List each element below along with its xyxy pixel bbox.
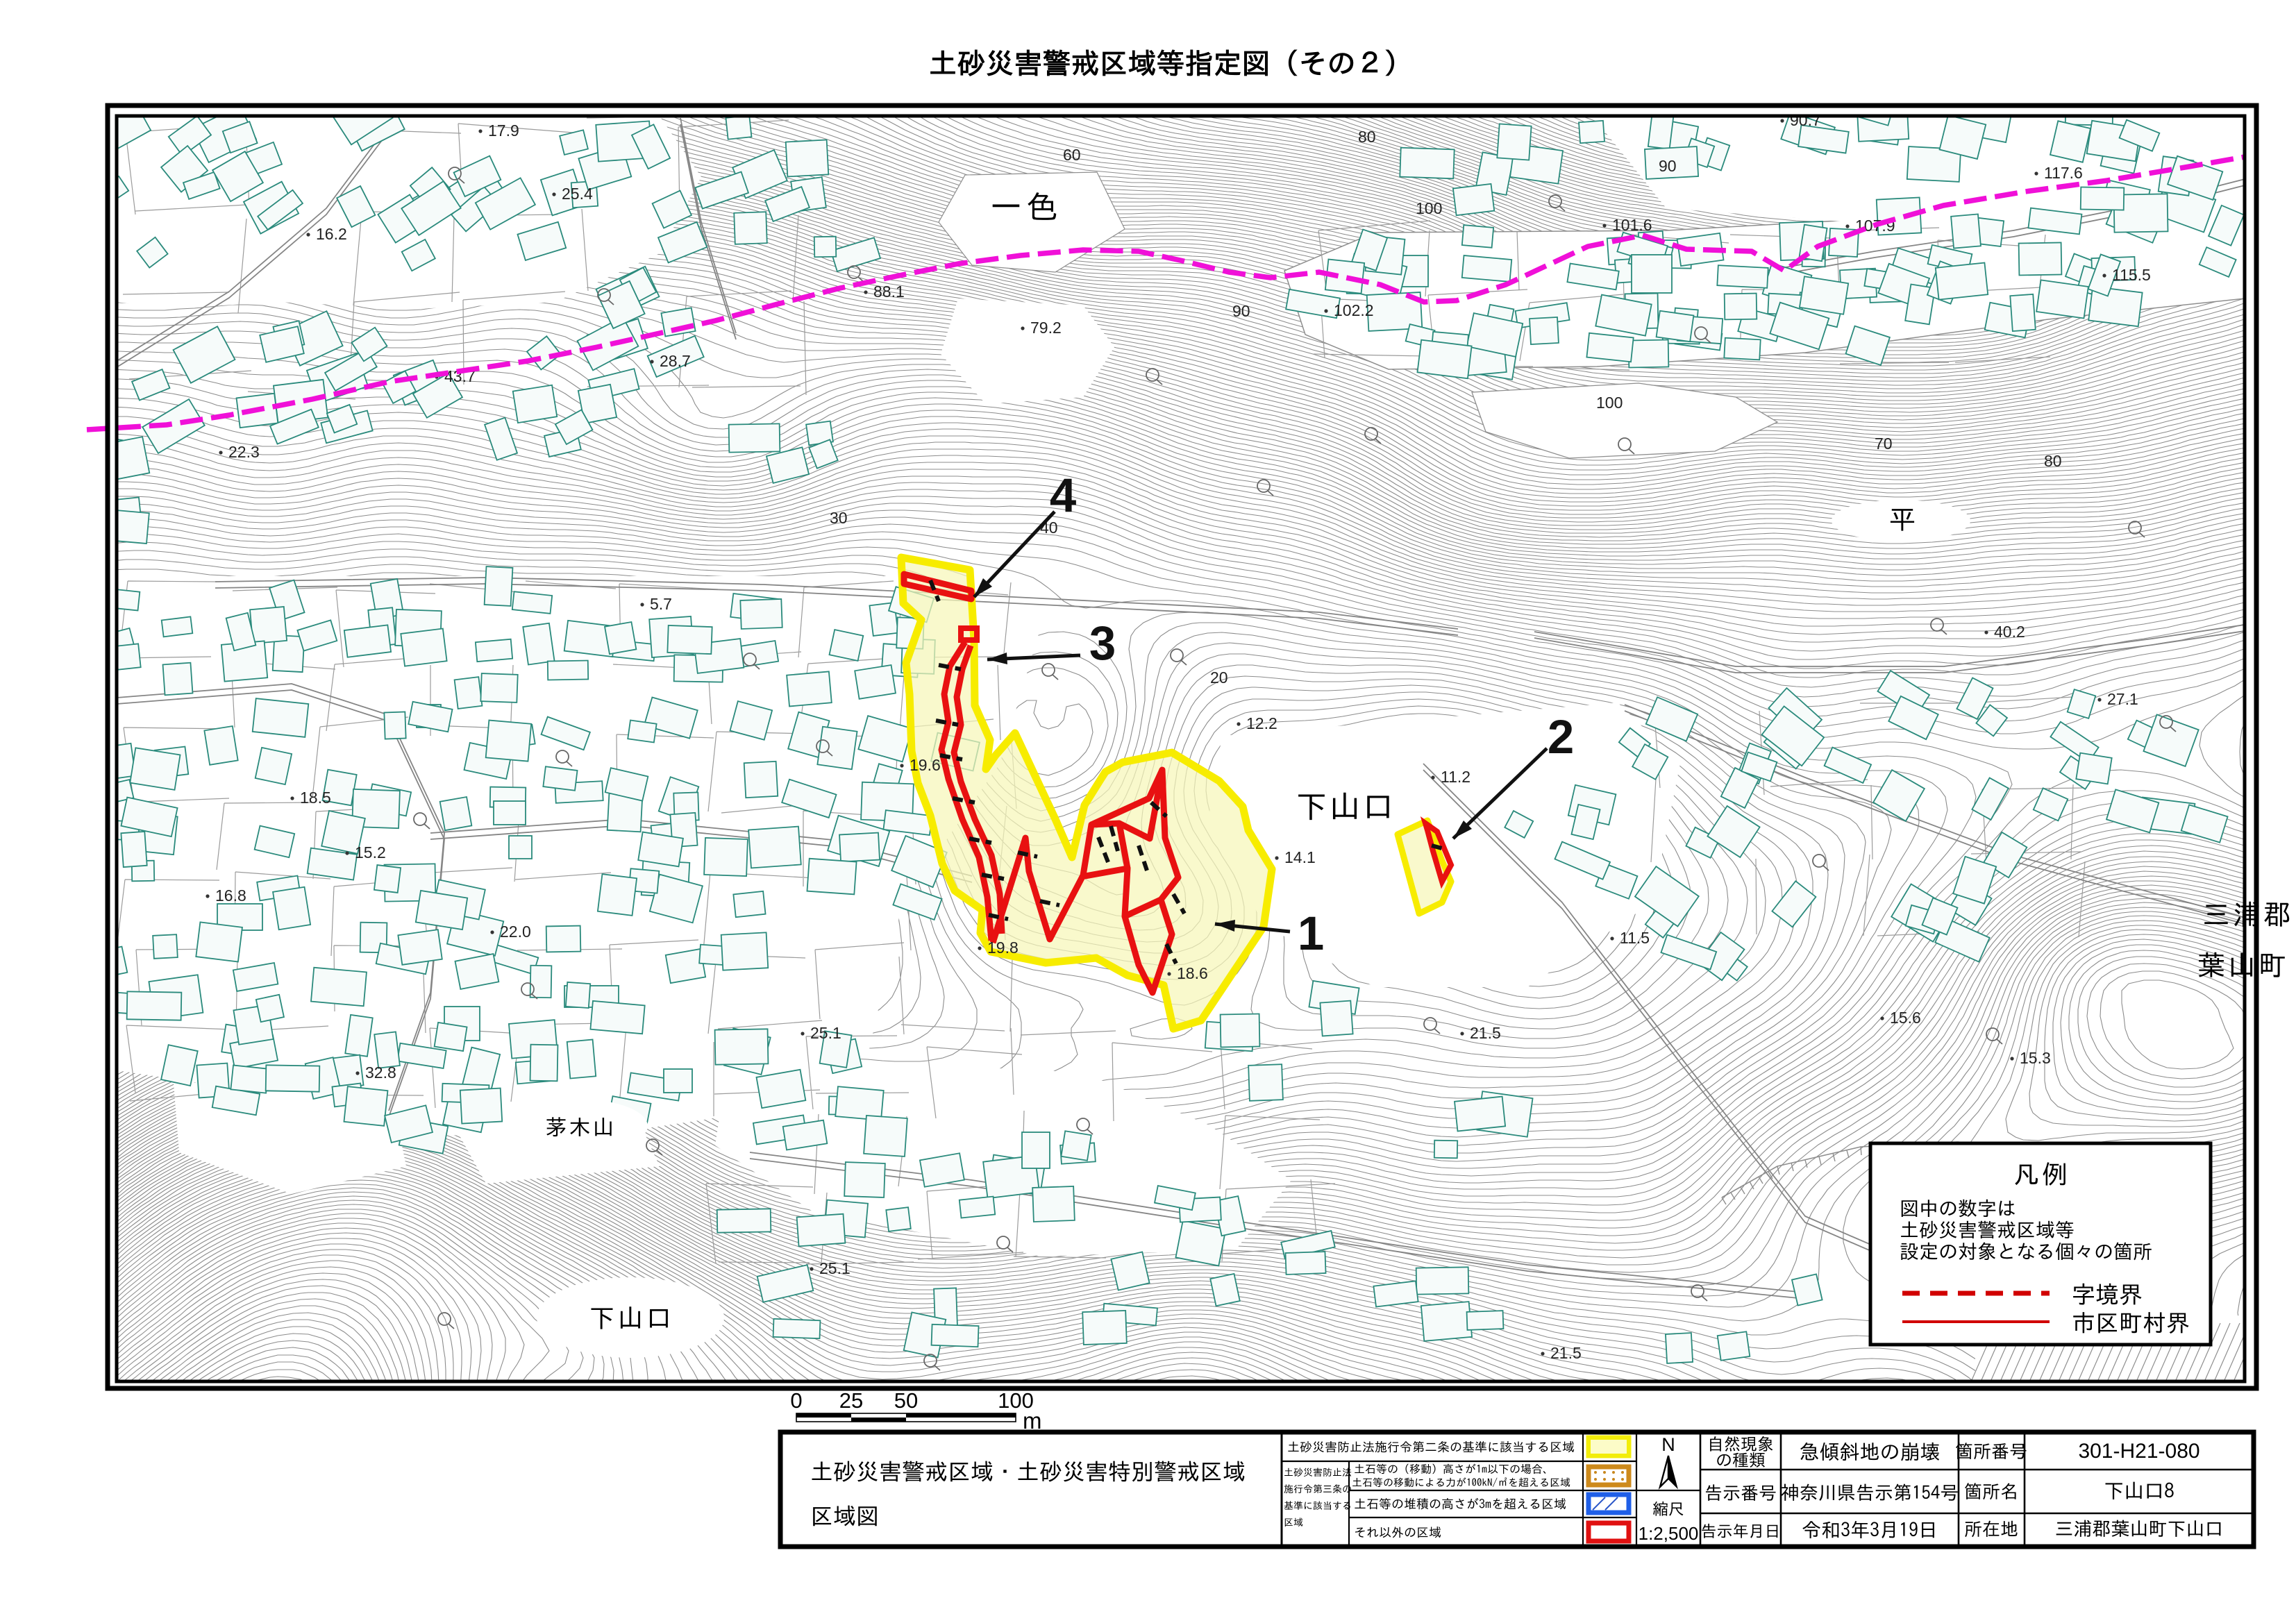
svg-text:2: 2 <box>1548 710 1574 764</box>
svg-text:30: 30 <box>830 509 848 527</box>
svg-text:3: 3 <box>1089 616 1116 670</box>
svg-text:70: 70 <box>1875 435 1893 453</box>
svg-text:100: 100 <box>1416 199 1442 217</box>
svg-text:21.5: 21.5 <box>1470 1024 1501 1042</box>
svg-text:0: 0 <box>790 1388 802 1413</box>
svg-text:25.1: 25.1 <box>819 1259 850 1277</box>
svg-text:22.3: 22.3 <box>228 443 260 461</box>
svg-text:m: m <box>1023 1408 1042 1433</box>
svg-text:25.4: 25.4 <box>562 185 593 203</box>
svg-text:11.2: 11.2 <box>1441 768 1470 786</box>
svg-text:100: 100 <box>1596 394 1623 412</box>
svg-text:25.1: 25.1 <box>810 1024 841 1042</box>
svg-text:18.5: 18.5 <box>300 789 331 807</box>
svg-text:32.8: 32.8 <box>365 1063 396 1082</box>
svg-text:5.7: 5.7 <box>650 595 672 613</box>
svg-text:19.6: 19.6 <box>910 756 941 774</box>
svg-text:1:2,500: 1:2,500 <box>1639 1523 1699 1544</box>
svg-text:20: 20 <box>1210 668 1228 687</box>
svg-text:18.6: 18.6 <box>1177 964 1208 982</box>
svg-text:90: 90 <box>1659 157 1677 175</box>
svg-text:80: 80 <box>2044 452 2062 470</box>
svg-text:301-H21-080: 301-H21-080 <box>2078 1440 2199 1463</box>
svg-text:14.1: 14.1 <box>1284 848 1316 866</box>
svg-text:80: 80 <box>1358 128 1376 146</box>
svg-text:15.2: 15.2 <box>355 843 386 861</box>
svg-text:50: 50 <box>894 1388 918 1413</box>
svg-text:115.5: 115.5 <box>2112 266 2151 284</box>
svg-text:N: N <box>1661 1434 1675 1455</box>
svg-text:19.8: 19.8 <box>987 939 1019 957</box>
svg-text:16.2: 16.2 <box>316 225 347 243</box>
svg-text:12.2: 12.2 <box>1246 714 1277 732</box>
svg-text:27.1: 27.1 <box>2107 690 2138 708</box>
svg-text:79.2: 79.2 <box>1030 319 1062 337</box>
svg-text:4: 4 <box>1050 469 1076 522</box>
svg-text:11.5: 11.5 <box>1620 929 1650 947</box>
svg-text:21.5: 21.5 <box>1550 1344 1582 1362</box>
svg-text:16.8: 16.8 <box>215 886 246 905</box>
svg-text:22.0: 22.0 <box>500 923 531 941</box>
svg-text:1: 1 <box>1298 907 1324 960</box>
svg-text:40.2: 40.2 <box>1994 623 2025 641</box>
svg-text:102.2: 102.2 <box>1334 301 1374 319</box>
svg-text:25: 25 <box>839 1388 863 1413</box>
svg-text:15.3: 15.3 <box>2020 1049 2051 1067</box>
svg-text:90: 90 <box>1232 302 1250 320</box>
svg-text:17.9: 17.9 <box>488 121 519 140</box>
svg-text:15.6: 15.6 <box>1890 1009 1921 1027</box>
svg-text:60: 60 <box>1063 146 1081 164</box>
svg-text:88.1: 88.1 <box>873 283 905 301</box>
svg-text:101.6: 101.6 <box>1612 216 1652 234</box>
svg-text:28.7: 28.7 <box>660 352 691 370</box>
svg-text:117.6: 117.6 <box>2044 164 2083 182</box>
